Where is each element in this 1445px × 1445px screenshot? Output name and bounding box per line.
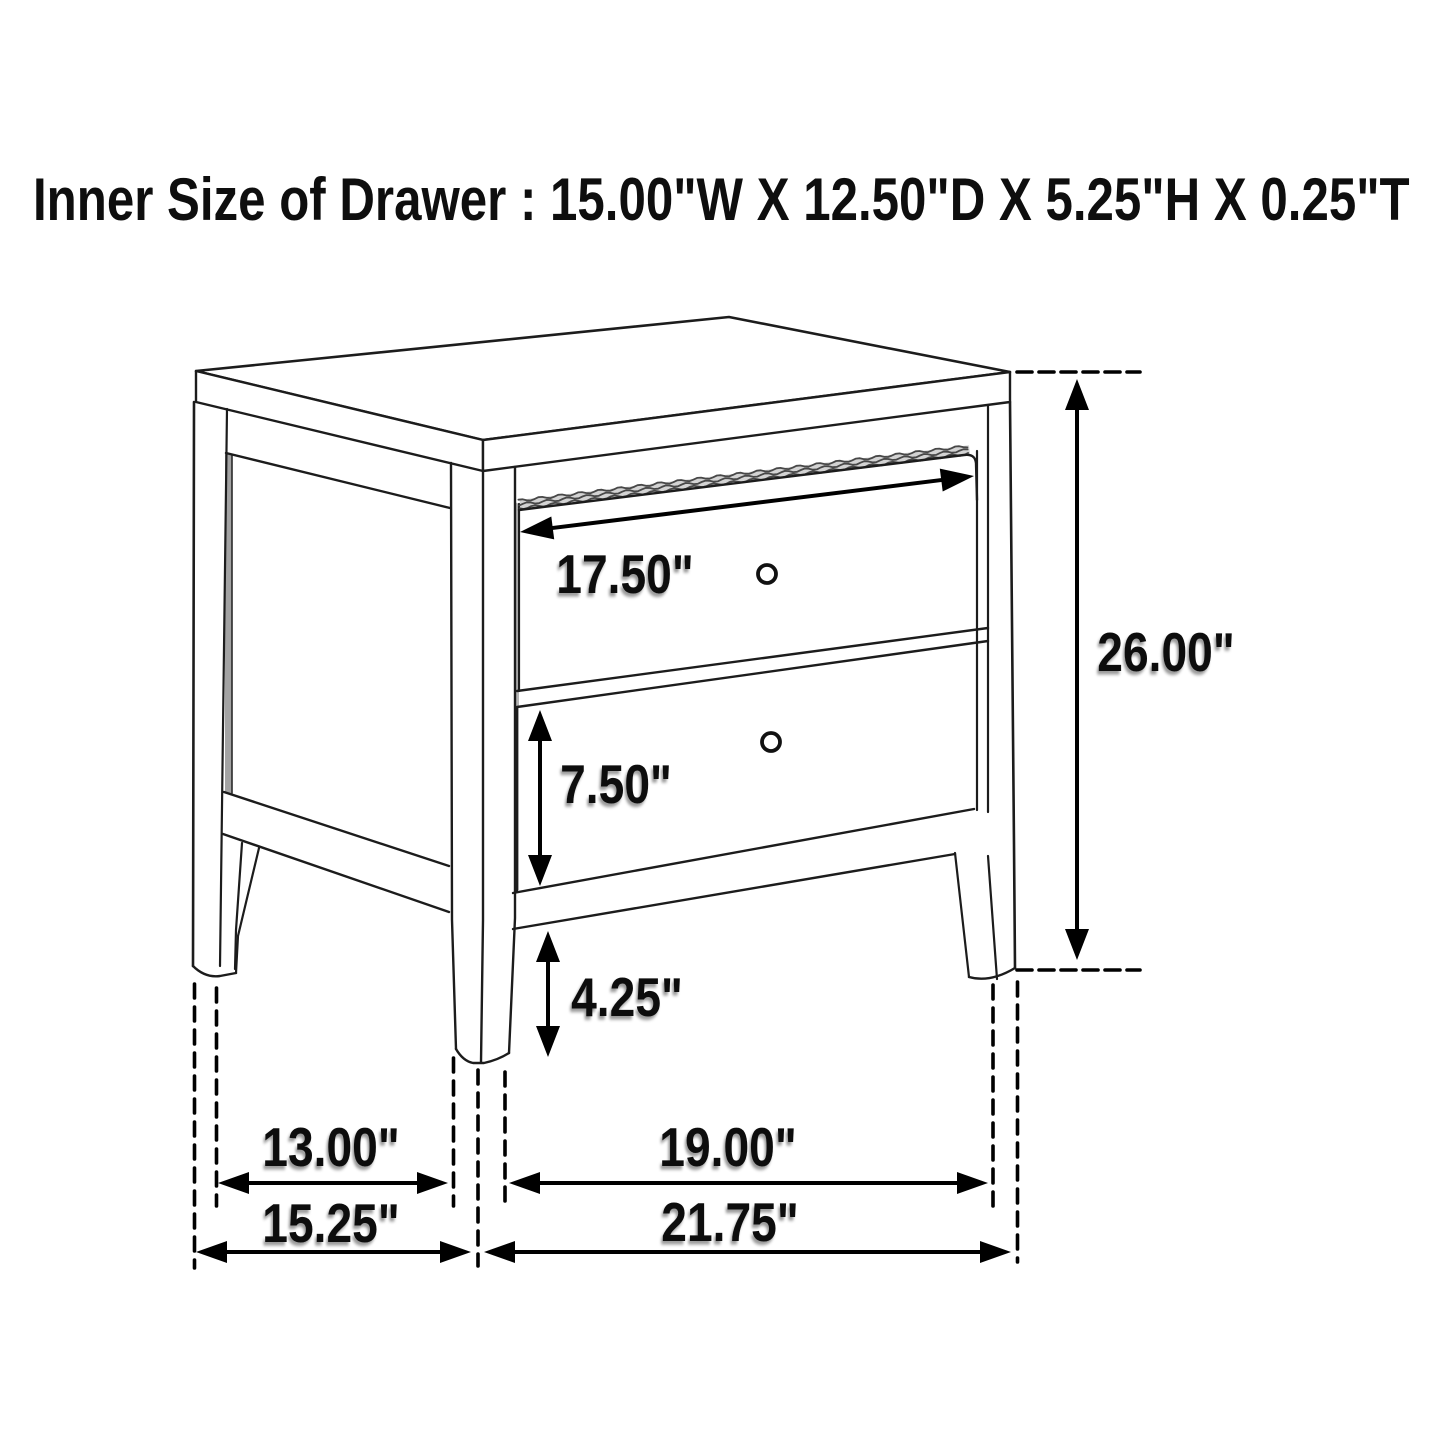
svg-text:13.00": 13.00" bbox=[262, 1116, 399, 1178]
svg-text:19.00": 19.00" bbox=[659, 1116, 796, 1178]
svg-text:4.25": 4.25" bbox=[571, 966, 683, 1028]
svg-text:7.50": 7.50" bbox=[560, 753, 672, 815]
svg-text:15.25": 15.25" bbox=[262, 1192, 399, 1254]
svg-text:21.75": 21.75" bbox=[661, 1191, 798, 1253]
svg-text:26.00": 26.00" bbox=[1097, 621, 1234, 683]
svg-text:17.50": 17.50" bbox=[556, 543, 693, 605]
svg-text:Inner Size of Drawer : 15.00"W: Inner Size of Drawer : 15.00"W X 12.50"D… bbox=[33, 165, 1410, 233]
